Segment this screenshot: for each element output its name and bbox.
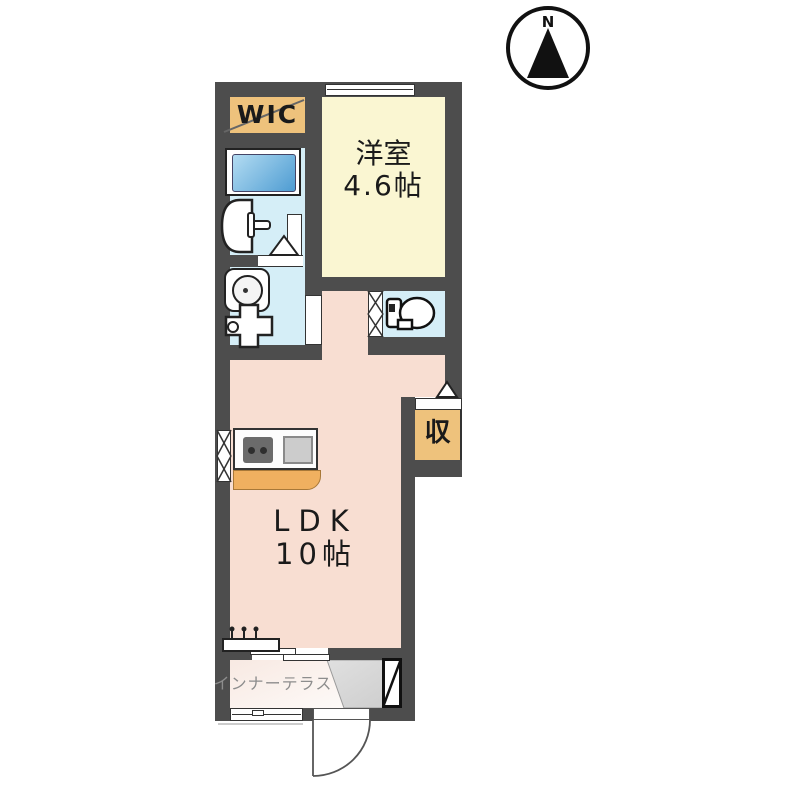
ldk-label: LDK 10帖 <box>228 505 403 572</box>
washroom-door <box>287 214 302 256</box>
kitchen-louver-window <box>217 430 231 482</box>
ldk-washroom-door <box>305 295 322 345</box>
ldk-floor <box>368 355 445 397</box>
stove-burner <box>248 447 255 454</box>
stove-burner <box>260 447 267 454</box>
wall-western-south <box>322 277 462 291</box>
wic-label: WIC <box>230 101 305 130</box>
shoe-cabinet <box>382 658 402 708</box>
terrace-window-tick <box>252 710 264 716</box>
inner-terrace-label: インナーテラス <box>198 675 348 693</box>
storage-door <box>415 398 462 410</box>
wall-storage-bottom <box>401 460 462 477</box>
wall-door-post <box>303 708 313 721</box>
ldk-floor <box>322 291 368 648</box>
compass-needle <box>527 28 569 78</box>
floor-plan: N WIC 洋室 4.6帖 LDK 10帖 収 インナーテラス <box>0 0 800 800</box>
compass-n: N <box>542 13 555 31</box>
toilet-folding-door <box>368 291 383 337</box>
western-room-size: 4.6帖 <box>322 170 445 202</box>
entrance-door <box>313 720 370 776</box>
north-compass: N <box>508 8 588 88</box>
washbasin-drain <box>243 288 248 293</box>
ldk-name: LDK <box>228 505 403 538</box>
ldk-size: 10帖 <box>228 538 403 571</box>
ldk-counter <box>222 638 280 652</box>
storage-label: 収 <box>415 419 460 449</box>
bathtub <box>232 154 296 192</box>
western-room-window <box>325 84 415 96</box>
wall-ldk-east-lower <box>401 477 415 720</box>
toilet-room-floor <box>383 291 445 337</box>
terrace-window-line <box>232 714 301 715</box>
wall-wet-divider <box>215 255 260 267</box>
wet-rooms-opening <box>258 255 303 267</box>
wall-wet-south <box>215 345 322 360</box>
wall-entrance-bottom <box>370 708 415 721</box>
compass-ring <box>508 8 588 88</box>
western-room-name: 洋室 <box>322 138 445 170</box>
kitchen-sink <box>283 436 313 464</box>
western-room-label: 洋室 4.6帖 <box>322 138 445 202</box>
kitchen-base <box>233 470 321 490</box>
wall-toilet-south <box>368 337 462 355</box>
entrance-threshold <box>313 708 370 720</box>
terrace-sliding-door-panel <box>283 654 330 661</box>
western-room-window-line <box>327 89 413 90</box>
